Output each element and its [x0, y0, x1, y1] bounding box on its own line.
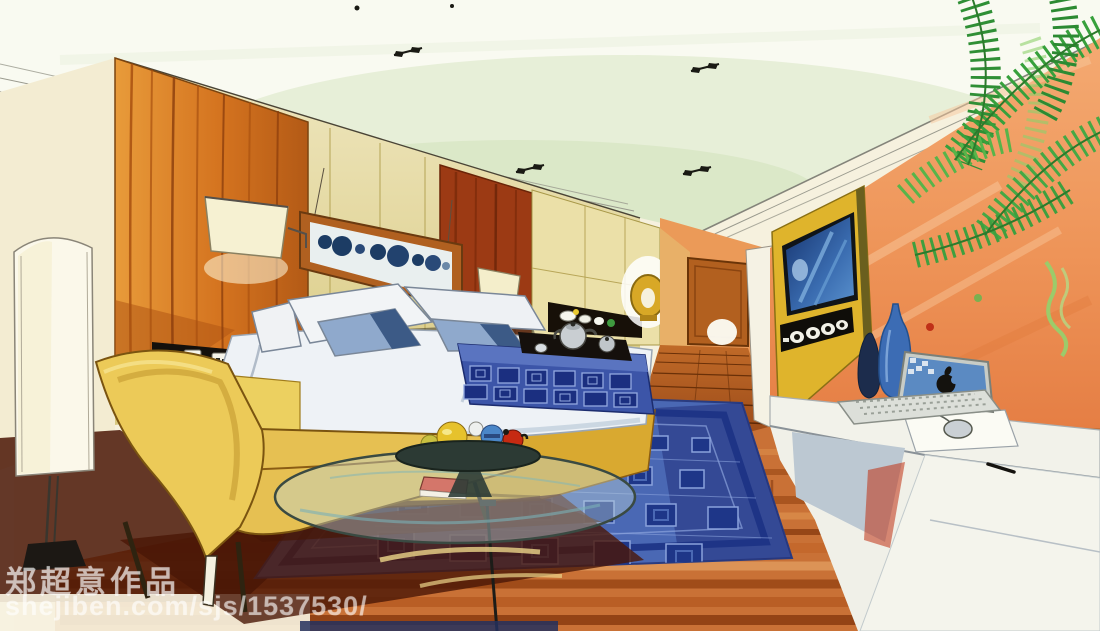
- recessed-light-icon: [355, 6, 360, 11]
- hallway-door: [688, 258, 748, 346]
- sketch-canvas: [0, 0, 1100, 631]
- green-fruit: [607, 319, 615, 327]
- lamp-base: [22, 540, 86, 571]
- paint-splatter: [926, 323, 934, 331]
- foreground-edge: [300, 621, 558, 631]
- paint-splatter: [974, 294, 982, 302]
- artwork-canvas: 郑超意作品 shejiben.com/sjs/1537530/: [0, 0, 1100, 631]
- mouse: [944, 420, 972, 438]
- recessed-light-icon: [450, 4, 454, 8]
